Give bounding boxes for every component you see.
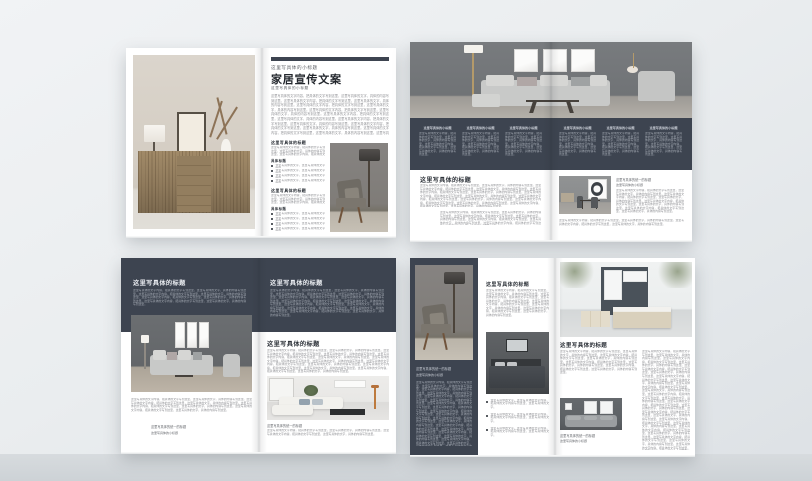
table-leg-shape [582, 201, 583, 209]
band-column-5: 这里写具体的小标题 这里写具体的文字内容，把具体的文字写到这里，这里写具体的文字… [602, 125, 639, 166]
band-column-text: 这里写具体的文字内容，把具体的文字写到这里，这里写具体的文字，具体的内容写到这里… [419, 132, 456, 166]
spread2-photo-caption-1: 这里写具体的统一的标题 [616, 177, 684, 182]
floor-lamp-stem-shape [453, 284, 455, 333]
spread3-left-band-paragraph: 这里写具体的文字内容，把具体的文字写到这里，这里写具体的文字，具体的内容写到这里… [133, 289, 246, 309]
kitchen-photo [560, 262, 692, 337]
band-left-columns: 这里写具体的小标题 这里写具体的文字内容，把具体的文字写到这里，这里写具体的文字… [419, 125, 543, 166]
dining-room-photo [559, 176, 611, 214]
group2-bullet-2: 这里写具体的文字，这里写具体的文字内容。 [271, 217, 325, 221]
pillow-shape [167, 352, 177, 360]
floor-lamp-stem-shape [368, 161, 370, 207]
group2-subtitle: 具体标题 [271, 206, 325, 211]
group2-paragraph: 这里写具体的文字内容，把具体的文字写到这里，这里写具体的文字，具体的内容写到这里… [271, 194, 325, 204]
group1-bullet-4: 这里写具体的文字，这里写具体的文字内容。 [271, 179, 325, 183]
sideboard-shape [561, 193, 573, 201]
pillow-shape [193, 352, 203, 360]
table-lamp-shape [144, 125, 165, 142]
spread3-bottom-paragraph: 这里写具体的文字内容，把具体的文字写到这里，这里写具体的文字，具体的内容写到这里… [267, 429, 389, 441]
group1-bullet-2: 这里写具体的文字，这里写具体的文字内容。 [271, 169, 325, 173]
dining-chair-shape [591, 197, 598, 208]
sideboard-drawers-shape [177, 156, 211, 212]
sofa-cushion-shape [600, 416, 614, 420]
band-column-4: 这里写具体的小标题 这里写具体的文字内容，把具体的文字写到这里，这里写具体的文字… [559, 125, 596, 166]
spread4-bullet-2: 这里写具体的文字，这里写具体的文字内容，把具体的文字内容写到这里，这里写具体的文… [486, 413, 549, 424]
spread3-right-band-paragraph: 这里写具体的文字内容，把具体的文字写到这里，这里写具体的文字，具体的内容写到这里… [270, 289, 384, 317]
spread3-left-paragraph: 这里写具体的文字内容，把具体的文字写到这里，这里写具体的文字，具体的内容写到这里… [131, 398, 252, 419]
group2-bullet-1: 这里写具体的文字，这里写具体的文字内容。 [271, 212, 325, 216]
floor-lamp-stem-shape [374, 387, 376, 409]
spread4-page-right: 这里写具体的标题 这里写具体的文字内容，把具体的文字写到这里，这里写具体的文字，… [555, 258, 695, 455]
foliage-shape [655, 262, 692, 288]
sidebar-caption-1: 这里写具体的统一的标题 [416, 366, 472, 371]
sofa-cushion-shape [178, 350, 191, 359]
wall-art-shape [334, 380, 366, 387]
chair-leg-shape [357, 207, 362, 223]
spread4-mid-title: 这里写具体的标题 [486, 281, 549, 288]
spread2-left-paragraph: 这里写具体的文字内容，把具体的文字写到这里，这里写具体的文字，具体的内容写到这里… [420, 184, 541, 207]
spread-2: 这里写具体的小标题 这里写具体的文字内容，把具体的文字写到这里，这里写具体的文字… [410, 42, 692, 240]
chair-seat-shape [336, 198, 366, 208]
sofa-cushion-shape [153, 350, 166, 359]
feature-band: 这里写具体的小标题 这里写具体的文字内容，把具体的文字写到这里，这里写具体的文字… [410, 118, 692, 170]
wall-art-shape [506, 339, 527, 351]
coffee-table-shape [175, 375, 193, 377]
armchair-sidebar-photo [415, 265, 473, 360]
table-surface-edge [0, 454, 812, 481]
spread3-left-caption-1: 这里写具体的统一的标题 [151, 424, 251, 429]
wall-art-shape [199, 322, 209, 348]
chair-seat-shape [421, 324, 451, 334]
floor-lamp-stem-shape [472, 53, 474, 100]
armchair-shape [223, 354, 240, 377]
cover-intro-paragraph: 这里写具体的文字内容，把具体的文字写到这里，这里写具体的文字，具体的内容写到这里… [271, 94, 389, 135]
pillow-shape [299, 399, 310, 405]
upper-cabinet-shape [623, 271, 647, 282]
spread4-bullet-3: 这里写具体的文字，这里写具体的文字内容，把具体的文字内容写到这里，这里写具体的文… [486, 427, 549, 438]
cover-main-title: 家居宣传文案 [271, 71, 391, 87]
armchair-shape [638, 71, 675, 101]
group1-paragraph: 这里写具体的文字内容，把具体的文字写到这里，这里写具体的文字，具体的内容写到这里… [271, 146, 325, 156]
floor-lamp-shade-shape [359, 149, 380, 161]
sofa-cushion-shape [584, 416, 598, 420]
sideboard-photo [133, 55, 255, 229]
wall-art-shape [175, 322, 185, 348]
spread3-right-title: 这里写具体的标题 [270, 278, 385, 287]
mockup-canvas: 这里写具体的小标题 家居宣传文案 这里写具体的小标题 这里写具体的文字内容，把具… [0, 0, 812, 481]
spread2-photo-caption-2: 这里写具体的小标题 [616, 183, 684, 187]
coffee-table-shape [330, 409, 364, 415]
band-column-title: 这里写具体的小标题 [462, 125, 499, 130]
band-column-title: 这里写具体的小标题 [602, 125, 639, 130]
floor-lamp-shade-shape [141, 335, 149, 343]
kitchen-island-shape [613, 307, 671, 328]
sofa-cushion-shape [540, 75, 568, 86]
spread-4: 这里写具体的统一的标题 这里写具体的小标题 这里写具体的文字内容，把具体的文字写… [410, 258, 695, 455]
spread2-left-indent-paragraph: 这里写具体的文字内容，把具体的文字写到这里，这里写具体的文字，具体的内容写到这里… [440, 211, 541, 225]
band-column-title: 这里写具体的小标题 [419, 125, 456, 130]
base-cabinet-shape [581, 311, 610, 328]
bedroom-photo [486, 332, 549, 394]
pillow-shape [312, 399, 323, 405]
floor-lamp-stem-shape [144, 343, 146, 369]
ottoman-shape [472, 94, 500, 108]
sidebar-paragraph: 这里写具体的文字内容，把具体的文字写到这里，这里写具体的文字，具体的内容写到这里… [416, 381, 472, 446]
spread4-photo-caption-1: 这里写具体的统一的标题 [560, 433, 637, 438]
band-column-text: 这里写具体的文字内容，把具体的文字写到这里，这里写具体的文字，具体的内容写到这里… [462, 132, 499, 166]
living-room-photo [410, 42, 692, 118]
chair-leg-shape [423, 333, 429, 350]
spread2-left-title: 这里写具体的标题 [420, 175, 541, 184]
tall-cabinet-shape [604, 270, 622, 300]
living-room-dark-photo [131, 315, 252, 392]
sidebar-caption-2: 这里写具体的小标题 [416, 373, 472, 377]
spread4-right-col1-paragraph: 这里写具体的文字内容，把具体的文字写到这里，这里写具体的文字，具体的内容写到这里… [560, 350, 637, 395]
spread4-right-col2-paragraph: 这里写具体的文字内容，把具体的文字写到这里，这里写具体的文字，具体的内容写到这里… [642, 350, 690, 450]
group1-bullet-1: 这里写具体的文字，这里写具体的文字内容。 [271, 164, 325, 168]
bed-shape [489, 366, 546, 388]
sofa-cushion-shape [590, 75, 607, 86]
band-column-text: 这里写具体的文字内容，把具体的文字写到这里，这里写具体的文字，具体的内容写到这里… [602, 132, 639, 166]
spread4-right-title: 这里写具体的标题 [560, 341, 690, 349]
gray-sofa-photo [560, 398, 622, 430]
small-art-shape [565, 403, 572, 410]
foliage-shape [560, 262, 597, 288]
sectional-chaise-shape [272, 405, 313, 415]
band-column-text: 这里写具体的文字内容，把具体的文字写到这里，这里写具体的文字，具体的内容写到这里… [505, 132, 542, 166]
pillow-shape [517, 77, 537, 86]
floor-lamp-shade-shape [444, 272, 465, 284]
chair-leg-shape [339, 207, 345, 223]
band-column-2: 这里写具体的小标题 这里写具体的文字内容，把具体的文字写到这里，这里写具体的文字… [462, 125, 499, 166]
group1-subtitle: 具体标题 [271, 158, 325, 163]
spread-3: 这里写具体的标题 这里写具体的文字内容，把具体的文字写到这里，这里写具体的文字，… [121, 258, 396, 452]
band-column-title: 这里写具体的小标题 [645, 125, 682, 130]
spread4-sidebar: 这里写具体的统一的标题 这里写具体的小标题 这里写具体的文字内容，把具体的文字写… [410, 258, 478, 455]
sectional-sofa-photo [267, 376, 389, 420]
group1-bullet-3: 这里写具体的文字，这里写具体的文字内容。 [271, 174, 325, 178]
spread3-left-caption-2: 这里写具体的小标题 [151, 431, 251, 435]
band-column-title: 这里写具体的小标题 [559, 125, 596, 130]
chair-leg-shape [442, 333, 448, 350]
round-art-frame-shape [588, 179, 607, 199]
pillow-shape [571, 77, 591, 86]
title-accent-bar [271, 57, 389, 61]
cover-subtitle: 这里写具体的小标题 [271, 86, 389, 91]
band-column-3: 这里写具体的小标题 这里写具体的文字内容，把具体的文字写到这里，这里写具体的文字… [505, 125, 542, 166]
floor-lamp-shade-shape [371, 385, 380, 389]
plant-shape [304, 385, 319, 396]
sofa-cushion-shape [486, 75, 514, 86]
armchair-photo [330, 143, 388, 232]
wall-art-shape [514, 49, 538, 72]
group2-bullet-3: 这里写具体的文字，这里写具体的文字内容。 [271, 222, 325, 226]
band-column-text: 这里写具体的文字内容，把具体的文字写到这里，这里写具体的文字，具体的内容写到这里… [645, 132, 682, 166]
wall-art-shape [187, 322, 197, 348]
art-circle-shape [591, 182, 603, 195]
band-column-title: 这里写具体的小标题 [505, 125, 542, 130]
spread3-white-title: 这里写具体的标题 [267, 339, 389, 348]
wall-art-shape [584, 401, 598, 414]
spread3-left-title: 这里写具体的标题 [133, 278, 248, 287]
spread4-photo-caption-2: 这里写具体的小标题 [560, 439, 637, 443]
wall-art-shape [600, 401, 614, 414]
spread2-right-paragraph: 这里写具体的文字内容，把具体的文字写到这里，这里写具体的文字，具体的内容写到这里… [616, 189, 684, 214]
spread4-mid-paragraph: 这里写具体的文字内容，把具体的文字写到这里，这里写具体的文字，具体的内容写到这里… [486, 289, 549, 329]
band-column-1: 这里写具体的小标题 这里写具体的文字内容，把具体的文字写到这里，这里写具体的文字… [419, 125, 456, 166]
spread3-white-paragraph: 这里写具体的文字内容，把具体的文字写到这里，这里写具体的文字，具体的内容写到这里… [267, 349, 389, 373]
sofa-cushion-shape [567, 416, 581, 420]
group2-bullet-4: 这里写具体的文字，这里写具体的文字内容。 [271, 227, 325, 231]
spread2-right-bottom-paragraph: 这里写具体的文字内容，把具体的文字写到这里，这里写具体的文字，具体的内容写到这里… [559, 219, 684, 231]
wall-art-shape [543, 49, 567, 72]
spread-1: 这里写具体的小标题 家居宣传文案 这里写具体的小标题 这里写具体的文字内容，把具… [126, 48, 396, 236]
band-column-6: 这里写具体的小标题 这里写具体的文字内容，把具体的文字写到这里，这里写具体的文字… [645, 125, 682, 166]
band-right-columns: 这里写具体的小标题 这里写具体的文字内容，把具体的文字写到这里，这里写具体的文字… [559, 125, 683, 166]
wall-art-shape [571, 49, 595, 72]
spread1-page-right: 这里写具体的小标题 家居宣传文案 这里写具体的小标题 这里写具体的文字内容，把具… [262, 48, 396, 236]
band-column-text: 这里写具体的文字内容，把具体的文字写到这里，这里写具体的文字，具体的内容写到这里… [559, 132, 596, 166]
spread3-photo-caption: 这里写具体的统一的标题 [267, 423, 389, 428]
lamp-arc-shape [633, 53, 635, 68]
spread4-bullet-1: 这里写具体的文字，这里写具体的文字内容，把具体的文字内容写到这里，这里写具体的文… [486, 399, 549, 410]
floor-lamp-shade-shape [464, 45, 484, 53]
spread1-page-left [126, 48, 262, 236]
